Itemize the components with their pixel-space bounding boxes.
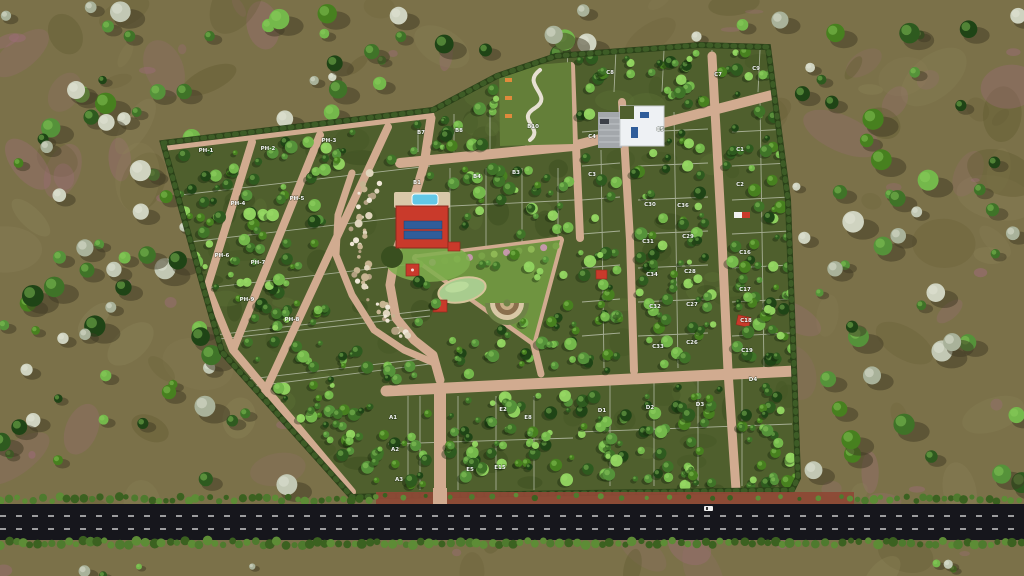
- plot-label: B10: [527, 124, 539, 130]
- plot-label: E5: [466, 467, 474, 473]
- hedge-bush: [524, 537, 531, 544]
- hedge-bush: [195, 541, 204, 550]
- rock-garden-stone: [374, 189, 379, 194]
- plot-label: C4: [588, 134, 596, 140]
- hedge-bush: [894, 495, 900, 501]
- hedge-bush: [795, 540, 802, 547]
- plot-label: B3: [512, 170, 520, 176]
- hedge-bush: [764, 539, 771, 546]
- rock-garden-stone: [357, 255, 361, 259]
- flower-bed: [491, 251, 498, 258]
- hedge-bush: [917, 541, 923, 547]
- small-structure: [742, 212, 750, 218]
- plot-label: C17: [739, 287, 751, 293]
- rock-garden-stone: [364, 265, 370, 271]
- hedge-bush: [343, 540, 351, 548]
- roof-panel: [640, 112, 649, 118]
- hedge-bush: [140, 495, 148, 503]
- hedge-bush: [1001, 496, 1007, 502]
- hedge-bush: [224, 495, 229, 500]
- hedge-bush: [838, 538, 846, 546]
- hedge-bush: [177, 493, 185, 501]
- hedge-bush: [220, 542, 226, 548]
- hedge-bush: [313, 537, 322, 546]
- hedge-bush: [693, 540, 702, 549]
- rock-garden-stone: [366, 298, 369, 301]
- hedge-bush: [749, 540, 756, 547]
- rock-garden-stone: [367, 198, 372, 203]
- hedge-bush: [365, 497, 372, 504]
- plot-label: A2: [391, 447, 399, 453]
- rock-garden-stone: [355, 278, 360, 283]
- plot-label: C8: [606, 70, 614, 76]
- hedge-bush: [447, 539, 455, 547]
- rock-garden-stone: [385, 319, 389, 323]
- rock-garden-stone: [365, 212, 372, 219]
- aerial-site-render: PH-1PH-2PH-3PH-4PH-5PH-6PH-7PH-8PH-9B7B8…: [0, 0, 1024, 576]
- hedge-bush: [157, 538, 166, 547]
- hedge-bush: [509, 540, 518, 549]
- hedge-bush: [285, 494, 292, 501]
- plot-label: C5: [656, 127, 664, 133]
- hedge-bush: [263, 494, 271, 502]
- hedge-bush: [48, 540, 55, 547]
- park-bench: [505, 96, 512, 100]
- rock-garden-stone: [356, 204, 361, 209]
- hedge-bush: [988, 542, 994, 548]
- hedge-bush: [255, 493, 262, 500]
- clubhouse-annex: [448, 242, 460, 251]
- hedge-bush: [132, 536, 142, 546]
- rock-garden-stone: [350, 242, 354, 246]
- swimming-pool: [412, 194, 438, 205]
- plot-label: C16: [739, 250, 751, 256]
- plot-label: PH-7: [251, 260, 266, 266]
- hedge-bush: [540, 537, 547, 544]
- hedge-bush: [932, 541, 939, 548]
- hedge-bush: [546, 539, 554, 547]
- hedge-bush: [295, 497, 301, 503]
- rock-garden-stone: [349, 227, 354, 232]
- plot-label: PH-6: [215, 253, 230, 259]
- parked-car: [600, 119, 609, 124]
- hedge-bush: [479, 541, 487, 549]
- hedge-bush: [73, 541, 79, 547]
- hedge-bush: [516, 539, 523, 546]
- hedge-bush: [855, 538, 862, 545]
- flower-bed: [528, 246, 535, 253]
- rock-garden-stone: [377, 181, 382, 186]
- hedge-bush: [198, 495, 204, 501]
- hedge-bush: [456, 537, 466, 547]
- flower-bed: [478, 252, 485, 259]
- shrub: [383, 493, 388, 498]
- hedge-bush: [325, 496, 331, 502]
- hedge-bush: [292, 542, 298, 548]
- hedge-bush: [272, 537, 281, 546]
- hedge-bush: [326, 539, 334, 547]
- hedge-bush: [96, 493, 103, 500]
- hedge-bush: [101, 537, 107, 543]
- hedge-bush: [70, 495, 79, 504]
- hedge-bush: [555, 539, 564, 548]
- rock-garden-stone: [361, 283, 367, 289]
- hedge-bush: [716, 538, 723, 545]
- hedge-bush: [669, 537, 676, 544]
- shrub: [667, 494, 672, 499]
- hedge-bush: [207, 494, 213, 500]
- hedge-bush: [212, 540, 219, 547]
- plot-label: E8: [524, 415, 532, 421]
- hedge-bush: [926, 495, 933, 502]
- hedge-bush: [388, 539, 397, 548]
- plot-label: B4: [473, 174, 481, 180]
- hedge-bush: [231, 497, 238, 504]
- plot-label: B1: [413, 180, 421, 186]
- plot-label: PH-4: [231, 201, 246, 207]
- hedge-bush: [564, 539, 573, 548]
- vehicle: [704, 506, 713, 511]
- hedge-bush: [904, 494, 910, 500]
- plot-label: PH-9: [240, 297, 255, 303]
- rock-garden-stone: [391, 327, 399, 335]
- hedge-bush: [191, 494, 200, 503]
- plot-label: PH-3: [322, 138, 337, 144]
- plot-label: PH-2: [261, 146, 276, 152]
- hedge-bush: [731, 538, 739, 546]
- hedge-bush: [861, 497, 869, 505]
- rock-garden-stone: [361, 186, 367, 192]
- hedge-bush: [865, 537, 872, 544]
- plot-label: C30: [644, 202, 656, 208]
- hedge-bush: [26, 541, 33, 548]
- rock-garden-stone: [384, 314, 388, 318]
- estate-entrance: [433, 488, 447, 506]
- hedge-bush: [646, 541, 653, 548]
- hedge-bush: [424, 538, 434, 548]
- hedge-bush: [243, 539, 250, 546]
- shrub: [815, 495, 821, 501]
- hedge-bush: [156, 498, 163, 505]
- hedge-bush: [115, 492, 124, 501]
- plot-label: C7: [714, 72, 722, 78]
- hedge-bush: [397, 539, 403, 545]
- shrub: [489, 494, 495, 500]
- hedge-bush: [802, 540, 809, 547]
- hedge-bush: [170, 498, 176, 504]
- hedge-bush: [976, 496, 983, 503]
- hedge-bush: [978, 540, 987, 549]
- hedge-bush: [1007, 497, 1014, 504]
- hedge-bush: [79, 494, 88, 503]
- hedge-bush: [235, 540, 243, 548]
- plot-label: PH-5: [290, 196, 305, 202]
- hedge-bush: [278, 497, 285, 504]
- hedge-bush: [174, 539, 180, 545]
- plot-label: D3: [696, 402, 705, 408]
- rock-garden-stone: [385, 305, 390, 310]
- plot-label: D1: [598, 408, 607, 414]
- hedge-bush: [340, 496, 346, 502]
- hedge-bush: [969, 494, 974, 499]
- hedge-bush: [914, 498, 920, 504]
- hedge-bush: [831, 541, 838, 548]
- hedge-bush: [366, 538, 374, 546]
- hedge-bush: [357, 539, 367, 549]
- plot-label: C1: [736, 147, 744, 153]
- hedge-bush: [355, 495, 363, 503]
- hedge-bush: [848, 538, 854, 544]
- scene-canvas: PH-1PH-2PH-3PH-4PH-5PH-6PH-7PH-8PH-9B7B8…: [0, 0, 1024, 576]
- small-structure: [734, 212, 742, 218]
- hedge-bush: [310, 498, 317, 505]
- hedge-bush: [89, 496, 95, 502]
- plot-label: C3: [588, 172, 596, 178]
- plot-label: PH-1: [199, 148, 214, 154]
- hedge-bush: [33, 540, 42, 549]
- hedge-bush: [335, 540, 342, 547]
- park-bench: [505, 114, 512, 118]
- hedge-bush: [115, 540, 125, 550]
- highway-road: [0, 504, 1024, 540]
- hedge-bush: [986, 495, 994, 503]
- hedge-bush: [581, 540, 591, 550]
- rock-garden-stone: [376, 310, 381, 315]
- plot-label: E15: [494, 465, 506, 471]
- farm-shed: [596, 270, 607, 279]
- shrub: [619, 495, 625, 501]
- shrub: [645, 496, 649, 500]
- hedge-bush: [1016, 498, 1022, 504]
- hedge-bush: [65, 537, 73, 545]
- hedge-bush: [334, 496, 340, 502]
- plot-label: D2: [646, 405, 655, 411]
- hedge-bush: [49, 498, 55, 504]
- hedge-bush: [141, 538, 150, 547]
- hedge-bush: [374, 538, 381, 545]
- hedge-bush: [252, 537, 260, 545]
- hedge-bush: [472, 539, 481, 548]
- flower-bed: [553, 243, 560, 250]
- rock-garden-stone: [392, 314, 395, 317]
- hedge-bush: [14, 495, 20, 501]
- hedge-bush: [785, 538, 795, 548]
- hedge-bush: [741, 537, 750, 546]
- plot-label: C33: [652, 344, 664, 350]
- hedge-bush: [993, 498, 1001, 506]
- hedge-bush: [932, 495, 940, 503]
- hedge-bush: [239, 494, 247, 502]
- plot-label: C28: [684, 269, 696, 275]
- hedge-bush: [408, 540, 418, 550]
- rock-garden-stone: [366, 169, 374, 177]
- hedge-bush: [855, 497, 860, 502]
- shrub: [710, 496, 715, 501]
- rock-garden-stone: [361, 273, 369, 281]
- planting-bed: [381, 246, 403, 268]
- hedge-bush: [757, 537, 765, 545]
- shrub: [839, 494, 844, 499]
- shrub: [778, 494, 783, 499]
- hedge-bush: [249, 494, 257, 502]
- hedge-bush: [229, 538, 236, 545]
- hedge-bush: [939, 537, 947, 545]
- plot-label: C31: [642, 239, 654, 245]
- shrub: [598, 493, 604, 499]
- rock-garden-stone: [351, 272, 357, 278]
- shrub: [756, 495, 761, 500]
- hedge-bush: [678, 539, 685, 546]
- plot-label: C9: [752, 66, 760, 72]
- hedge-bush: [888, 537, 898, 547]
- hedge-bush: [709, 541, 717, 549]
- hedge-bush: [1007, 538, 1016, 547]
- hedge-bush: [92, 537, 102, 547]
- plot-label: B7: [417, 130, 425, 136]
- solar-panels: [404, 221, 442, 229]
- plot-label: A1: [389, 415, 397, 421]
- rock-garden-stone: [357, 244, 363, 250]
- plot-label: PH-8: [285, 317, 300, 323]
- hedge-bush: [847, 495, 853, 501]
- hedge-bush: [131, 494, 138, 501]
- hedge-bush: [381, 540, 389, 548]
- hedge-bush: [123, 494, 128, 499]
- hedge-bush: [42, 541, 48, 547]
- plot-label: A3: [395, 477, 403, 483]
- hedge-bush: [5, 495, 13, 503]
- hedge-bush: [57, 540, 66, 549]
- flower-bed: [540, 244, 547, 251]
- hedge-bush: [167, 538, 175, 546]
- shrub: [448, 495, 453, 500]
- rock-garden-stone: [404, 332, 411, 339]
- hedge-bush: [39, 494, 47, 502]
- hedge-bush: [30, 497, 37, 504]
- hedge-bush: [149, 497, 157, 505]
- plot-label: C32: [649, 304, 661, 310]
- highway-corridor: [0, 488, 1024, 550]
- rock-garden-stone: [399, 334, 403, 338]
- hedge-bush: [919, 493, 927, 501]
- rock-garden-stone: [357, 192, 360, 195]
- rock-garden-stone: [358, 250, 361, 253]
- shrub: [400, 495, 406, 501]
- hedge-bush: [953, 540, 963, 550]
- hedge-bush: [994, 539, 1000, 545]
- plot-label: C27: [686, 302, 698, 308]
- shrub: [532, 495, 538, 501]
- plot-label: C2: [736, 182, 744, 188]
- plot-label: B8: [455, 128, 463, 134]
- hedge-bush: [107, 541, 114, 548]
- plot-label: D4: [749, 377, 758, 383]
- shrub: [514, 493, 519, 498]
- hedge-bush: [942, 496, 948, 502]
- hedge-bush: [438, 540, 445, 547]
- hedge-bush: [907, 539, 915, 547]
- hedge-bush: [898, 539, 906, 547]
- hedge-bush: [684, 541, 691, 548]
- hedge-bush: [5, 537, 14, 546]
- hedge-bush: [615, 540, 621, 546]
- hedge-bush: [163, 498, 169, 504]
- hedge-bush: [272, 495, 278, 501]
- hedge-bush: [573, 539, 581, 547]
- rock-garden-stone: [355, 220, 363, 228]
- hedge-bush: [653, 540, 662, 549]
- plot-label: C34: [646, 272, 658, 278]
- hedge-bush: [203, 536, 213, 546]
- hedge-bush: [106, 495, 114, 503]
- hedge-bush: [373, 494, 379, 500]
- shrub: [574, 493, 579, 498]
- hedge-bush: [63, 495, 71, 503]
- hedge-bush: [433, 540, 439, 546]
- hedge-bush: [870, 495, 879, 504]
- shrub: [469, 494, 475, 500]
- hedge-bush: [970, 540, 980, 550]
- shrub: [727, 495, 733, 501]
- hedge-bush: [319, 497, 325, 503]
- solar-panels: [404, 231, 442, 239]
- shrub: [557, 495, 561, 499]
- roof-panel: [631, 127, 638, 138]
- hedge-bush: [959, 495, 968, 504]
- hedge-bush: [821, 538, 829, 546]
- hedge-bush: [605, 538, 614, 547]
- rock-garden-stone: [362, 234, 367, 239]
- hedge-bush: [22, 498, 28, 504]
- plot-label: E2: [499, 407, 507, 413]
- hedge-bush: [282, 541, 291, 550]
- shrub: [686, 494, 691, 499]
- plot-label: C26: [686, 340, 698, 346]
- shrub: [797, 497, 801, 501]
- hedge-bush: [886, 497, 893, 504]
- shrub: [424, 494, 428, 498]
- hedge-bush: [878, 495, 883, 500]
- plot-label: C18: [740, 318, 752, 324]
- hedge-bush: [531, 540, 539, 548]
- hedge-bush: [216, 498, 222, 504]
- hedge-bush: [347, 496, 356, 505]
- park-bench: [505, 78, 512, 82]
- plot-label: C29: [682, 234, 694, 240]
- hedge-bush: [417, 538, 425, 546]
- hedge-bush: [627, 537, 637, 547]
- hedge-bush: [661, 539, 668, 546]
- hedge-bush: [811, 540, 820, 549]
- plot-label: C36: [677, 203, 689, 209]
- rock-garden-stone: [376, 302, 379, 305]
- hedge-bush: [873, 539, 883, 549]
- hedge-bush: [591, 539, 600, 548]
- hedge-bush: [638, 538, 644, 544]
- plot-label: C19: [741, 348, 753, 354]
- rock-garden-stone: [353, 237, 359, 243]
